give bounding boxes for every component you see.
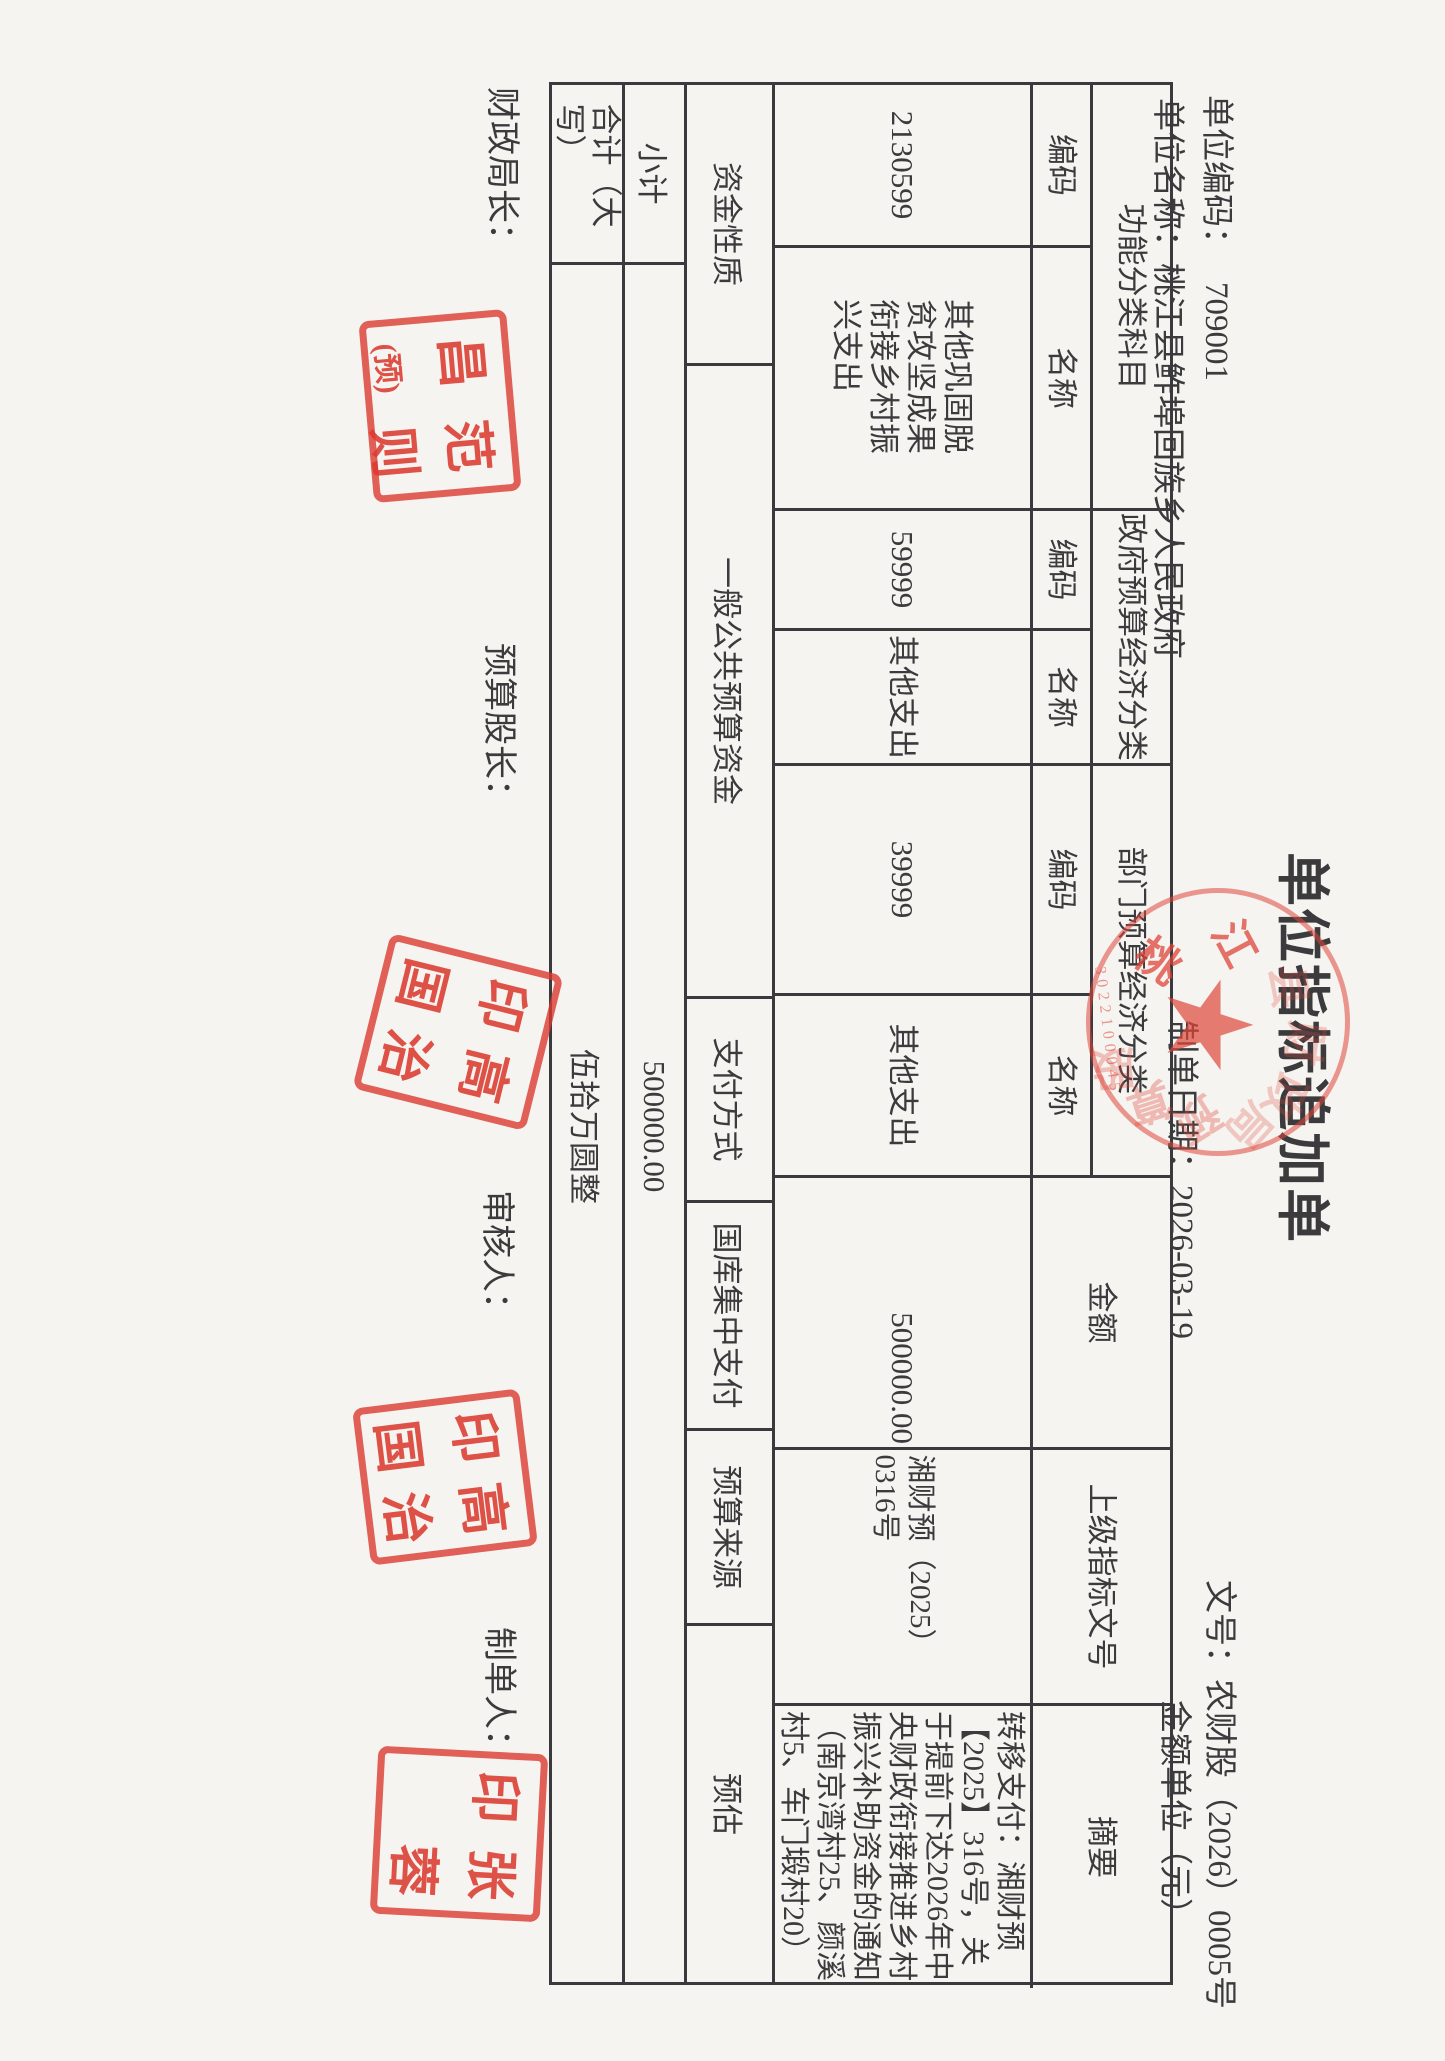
fund-nature-value: 一般公共预算资金 [687,363,772,996]
unit-code-label: 单位编码： [1198,95,1234,260]
seal-char: 蓉 [377,1830,459,1911]
col-header-doc-ref: 上级指标文号 [1033,1447,1170,1703]
subtotal-row: 小计 500000.00 [625,85,687,1982]
group-header-functional: 功能分类科目 [1093,85,1170,508]
doc-no-label: 文号： [1201,1580,1237,1679]
seal-char: 范 [432,400,514,490]
unit-code-value: 709001 [1198,282,1234,381]
seal-char: 治 [369,1477,454,1558]
seal-char: (预) [350,323,432,413]
subheader-func-name: 名称 [1033,245,1093,508]
subheader-dept-name: 名称 [1033,993,1093,1175]
unit-code-line: 单位编码：709001 [1196,95,1244,381]
form-title: 单位指标追加单 [1268,852,1347,1244]
sign-preparer: 制单人： [478,1627,527,1763]
name-seal-gao-1: 印 高 国 治 [352,933,563,1131]
pay-method-value: 国库集中支付 [687,1200,772,1428]
scanned-page: 单位指标追加单 单位编码：709001 文号：农财股（2026）0005号 单位… [0,0,1445,2061]
group-header-dept-econ: 部门预算经济分类 [1093,763,1170,1175]
data-dept-code: 39999 [775,763,1033,993]
fund-row: 资金性质 一般公共预算资金 支付方式 国库集中支付 预算来源 预估 [687,85,775,1982]
doc-no-value: 农财股（2026）0005号 [1201,1679,1237,2009]
seal-char: 张 [455,1834,537,1915]
data-dept-name: 其他支出 [775,993,1033,1175]
total-value: 伍拾万圆整 [552,262,622,1982]
budget-source-value: 预估 [687,1623,772,1982]
subheader-func-code: 编码 [1033,85,1093,245]
total-row: 合计（大写） 伍拾万圆整 [552,85,625,1982]
seal-char: 则 [357,407,439,497]
seal-char: 印 [459,1757,541,1838]
data-gov-name: 其他支出 [775,628,1033,763]
seal-char: 印 [436,1396,521,1477]
data-doc-ref: 湘财预（2025）0316号 [775,1447,1033,1703]
subheader-gov-name: 名称 [1033,628,1093,763]
seal-char: 国 [360,1406,445,1487]
col-header-summary: 摘要 [1033,1703,1170,1988]
form-sheet: 单位指标追加单 单位编码：709001 文号：农财股（2026）0005号 单位… [0,0,1445,2061]
pay-method-label: 支付方式 [687,996,772,1200]
subtotal-label: 小计 [625,85,684,262]
seal-char [381,1753,463,1834]
subheader-dept-code: 编码 [1033,763,1093,993]
table-main-grid: 功能分类科目 政府预算经济分类 部门预算经济分类 金额 上级指标文号 摘要 编码… [775,85,1170,1982]
col-header-amount: 金额 [1033,1175,1170,1447]
data-func-name: 其他巩固脱贫攻坚成果衔接乡村振兴支出 [775,245,1033,508]
data-summary: 转移支付：湘财预【2025】316号，关于提前下达2026年中央财政衔接推进乡村… [775,1703,1033,1988]
seal-char: 昌 [425,316,507,406]
budget-source-label: 预算来源 [687,1428,772,1623]
name-seal-fan: 昌 范 (预) 则 [358,309,521,503]
group-header-gov-econ: 政府预算经济分类 [1093,508,1170,763]
subheader-gov-code: 编码 [1033,508,1093,628]
seal-char: 高 [445,1468,530,1549]
sign-budget-chief: 预算股长： [478,643,527,813]
indicator-table: 功能分类科目 政府预算经济分类 部门预算经济分类 金额 上级指标文号 摘要 编码… [549,82,1173,1985]
sign-finance-director: 财政局长： [481,87,530,257]
stamp-char: 江 [1199,908,1276,977]
data-amount: 500000.00 [775,1175,1033,1447]
total-label: 合计（大写） [552,85,622,262]
name-seal-gao-2: 印 高 国 治 [352,1388,538,1565]
sign-reviewer: 审核人： [476,1190,525,1326]
name-seal-zhang: 印 张 蓉 [370,1746,549,1923]
data-func-code: 2130599 [775,85,1033,245]
subtotal-value: 500000.00 [625,262,684,1982]
doc-no-line: 文号：农财股（2026）0005号 [1199,1580,1247,2009]
data-gov-code: 59999 [775,508,1033,628]
fund-nature-label: 资金性质 [687,85,772,363]
